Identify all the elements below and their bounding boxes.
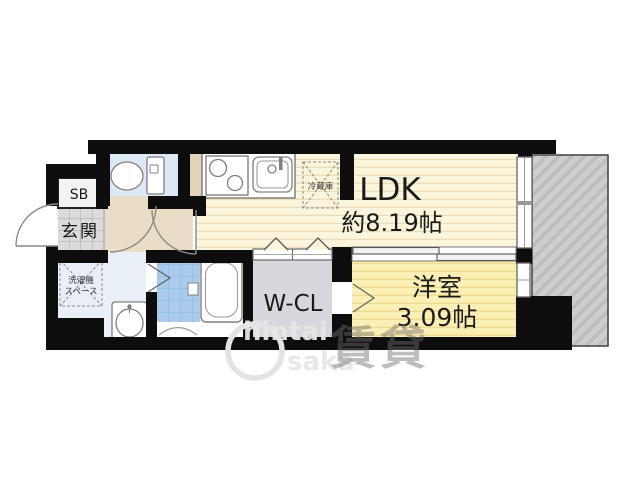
bath-counter bbox=[188, 283, 198, 295]
wall-hall-ldk-stub bbox=[193, 196, 206, 216]
entrance-door bbox=[16, 204, 58, 246]
laundry-label-line2: スペース bbox=[65, 287, 98, 297]
ldk-label: LDK bbox=[359, 172, 421, 208]
entrance-label: 玄関 bbox=[61, 222, 99, 242]
wcl-label: W-CL bbox=[264, 291, 323, 317]
watermark-kanji: 賃貸 bbox=[329, 321, 430, 375]
sink-faucet-icon bbox=[268, 165, 276, 173]
wall-right-lower bbox=[516, 296, 530, 338]
kitchen-counter bbox=[202, 152, 295, 198]
sink-faucet-icon bbox=[279, 157, 283, 170]
wcl-ldk-doors bbox=[253, 249, 332, 260]
ldk-balcony-window bbox=[517, 157, 532, 248]
floor-plan-page: LDK 約8.19帖 洋室 3.09帖 W-CL 玄関 SB 洗濯機 スペース … bbox=[0, 0, 640, 480]
floor-plan-drawing: LDK 約8.19帖 洋室 3.09帖 W-CL 玄関 SB 洗濯機 スペース … bbox=[0, 0, 640, 480]
entrance-door-arc bbox=[16, 204, 58, 246]
stove-burner-icon bbox=[228, 176, 243, 191]
sliding-door bbox=[352, 247, 516, 261]
wall-left-upper bbox=[46, 164, 58, 206]
toilet-door-threshold bbox=[110, 196, 148, 206]
wall-toilet-right bbox=[178, 140, 190, 198]
wall-pillar bbox=[528, 296, 572, 350]
watermark-text-top: hintai bbox=[243, 317, 328, 347]
wall-bath-top bbox=[146, 250, 243, 263]
bedroom-label: 洋室 bbox=[412, 273, 462, 302]
washbasin bbox=[112, 302, 147, 341]
wall-kitchen-stub bbox=[340, 154, 354, 200]
wall-window-stub bbox=[516, 246, 532, 264]
ldk-size-label: 約8.19帖 bbox=[341, 209, 442, 237]
window-sash-divider bbox=[517, 201, 532, 205]
laundry-label-line1: 洗濯機 bbox=[68, 275, 94, 286]
wall-under-toilet-left bbox=[96, 196, 108, 209]
bedroom-balcony-window bbox=[517, 263, 530, 297]
shoe-box-label: SB bbox=[70, 187, 89, 203]
wall-wcl-bedroom-upper bbox=[332, 247, 352, 282]
refrigerator-label: 冷蔵庫 bbox=[308, 181, 334, 192]
wall-genkan-bottom bbox=[46, 250, 108, 263]
hallway-floor bbox=[104, 204, 193, 252]
wall-washroom-bath-lower bbox=[146, 292, 157, 337]
bath-floor-strip bbox=[157, 322, 200, 337]
storage-block bbox=[190, 154, 202, 198]
wall-top bbox=[88, 140, 556, 154]
stove-burner-icon bbox=[210, 160, 227, 177]
